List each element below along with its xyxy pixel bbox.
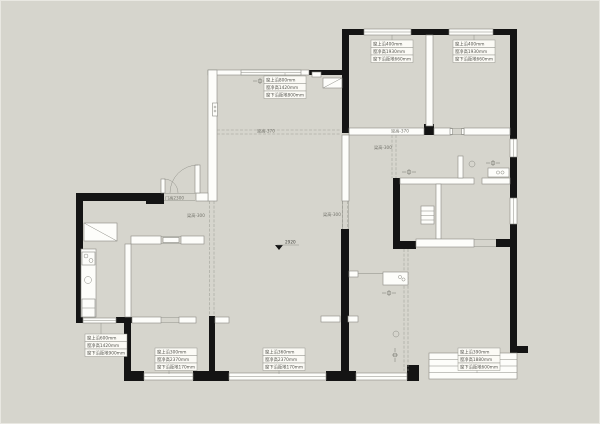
window xyxy=(144,373,193,380)
svg-text:窗下沿距地600mm: 窗下沿距地600mm xyxy=(460,364,498,371)
partition-wall xyxy=(179,317,196,323)
window-marker xyxy=(312,72,321,77)
door-height-label: 门高2300 xyxy=(165,195,184,202)
partition-wall xyxy=(196,193,208,201)
partition-wall xyxy=(125,244,131,317)
partition-wall xyxy=(321,316,340,322)
svg-text:窗净高1930mm: 窗净高1930mm xyxy=(373,48,405,55)
partition-wall xyxy=(181,236,204,244)
wall-segment xyxy=(510,157,517,198)
beam-labels: 梁高-370 梁高-370 梁高-300 梁高-300 梁高-300 xyxy=(187,128,409,220)
window xyxy=(449,29,493,35)
floor-drain-icon xyxy=(392,348,398,362)
wall-segment xyxy=(393,241,416,249)
svg-text:窗下沿距地800mm: 窗下沿距地800mm xyxy=(266,92,304,99)
wall-segment xyxy=(411,29,449,35)
floor-drain-icon xyxy=(402,169,416,175)
partition-wall xyxy=(208,70,217,201)
partition-wall xyxy=(482,178,510,184)
floor-drain-icon xyxy=(486,160,500,166)
sliding-door xyxy=(163,238,179,243)
svg-text:窗上沿400mm: 窗上沿400mm xyxy=(455,41,484,48)
partition-wall xyxy=(400,178,474,184)
beam-label: 梁高-300 xyxy=(323,211,341,218)
partition-wall xyxy=(416,239,474,247)
wall-segment xyxy=(209,316,215,373)
svg-text:窗净高2370mm: 窗净高2370mm xyxy=(265,356,297,363)
toilet xyxy=(393,331,399,337)
door-leaf xyxy=(161,179,165,193)
partition-wall xyxy=(132,317,161,323)
wall-segment xyxy=(342,29,349,133)
svg-text:窗上沿800mm: 窗上沿800mm xyxy=(266,77,295,84)
floor-plan-screenshot: 2920 梁高-370 梁高-370 梁高-300 梁高-300 梁高-300 … xyxy=(0,0,600,424)
window-annotation-box: 窗上沿360mm 窗净高2370mm 窗下沿距地170mm xyxy=(263,348,305,374)
door-swing-arc xyxy=(170,165,198,193)
cooktop xyxy=(82,252,95,265)
window xyxy=(241,70,301,75)
svg-text:窗上沿300mm: 窗上沿300mm xyxy=(157,349,186,356)
svg-text:窗下沿距地900mm: 窗下沿距地900mm xyxy=(87,350,125,357)
svg-text:窗下沿距地170mm: 窗下沿距地170mm xyxy=(265,364,303,371)
level-triangle-icon xyxy=(275,245,283,250)
partition-wall xyxy=(434,128,451,135)
svg-text:窗上沿600mm: 窗上沿600mm xyxy=(87,335,116,342)
window-annotation-box: 窗上沿600mm 窗净高1420mm 窗下沿距地900mm xyxy=(85,323,127,357)
fixtures xyxy=(81,72,509,337)
door-frame xyxy=(450,129,453,135)
level-marker: 2920 xyxy=(275,240,299,251)
window xyxy=(356,373,407,380)
beam-label: 梁高-300 xyxy=(187,212,205,219)
svg-text:窗净高2370mm: 窗净高2370mm xyxy=(157,356,189,363)
window xyxy=(364,29,411,35)
level-value: 2920 xyxy=(285,240,296,245)
entry-door xyxy=(161,165,200,193)
beam-label: 梁高-370 xyxy=(391,128,409,135)
partition-wall xyxy=(464,128,510,135)
window-annotation-box: 窗上沿400mm 窗净高1930mm 窗下沿距地660mm xyxy=(371,35,413,63)
bath-vanity xyxy=(358,272,408,285)
partition-wall xyxy=(342,135,349,201)
wall-segment xyxy=(146,193,164,204)
svg-text:窗净高1930mm: 窗净高1930mm xyxy=(455,48,487,55)
wall-segment xyxy=(510,346,528,353)
window xyxy=(510,139,517,157)
window-annotation-box: 窗上沿800mm 窗净高1420mm 窗下沿距地800mm xyxy=(264,73,306,99)
door-frame xyxy=(462,129,465,135)
partition-wall xyxy=(436,184,441,239)
svg-text:窗下沿距地660mm: 窗下沿距地660mm xyxy=(455,56,493,63)
partition-wall xyxy=(348,316,358,322)
svg-text:窗上沿390mm: 窗上沿390mm xyxy=(460,349,489,356)
partition-wall xyxy=(458,156,463,178)
svg-text:窗净高1420mm: 窗净高1420mm xyxy=(87,342,119,349)
window xyxy=(229,373,326,380)
window-annotation-box: 窗上沿400mm 窗净高1930mm 窗下沿距地660mm xyxy=(453,35,495,63)
floor-drain-icon xyxy=(382,290,396,296)
partition-wall xyxy=(349,128,424,135)
wash-basin xyxy=(469,161,475,167)
wall-segment xyxy=(341,229,349,379)
partition-wall xyxy=(426,35,433,126)
wall-vent xyxy=(213,103,218,116)
appliance-box xyxy=(84,223,117,241)
beam-label: 梁高-300 xyxy=(374,144,392,151)
corner-unit xyxy=(323,78,342,88)
window-annotation-box: 窗上沿390mm 窗净高1880mm 窗下沿距地600mm xyxy=(458,348,500,373)
wall-segment xyxy=(124,371,144,381)
wall-segment xyxy=(116,317,132,323)
towel-ladder xyxy=(421,206,434,224)
partition-wall xyxy=(349,271,358,277)
vanity-counter xyxy=(488,168,509,177)
window xyxy=(510,198,517,224)
wall-segment xyxy=(510,29,517,139)
floor-drain-symbols xyxy=(253,78,500,362)
wall-segment xyxy=(407,365,419,381)
beam-label: 梁高-370 xyxy=(257,128,275,135)
window-annotation-box: 窗上沿300mm 窗净高2370mm 窗下沿距地170mm xyxy=(155,348,197,374)
svg-text:窗下沿距地170mm: 窗下沿距地170mm xyxy=(157,364,195,371)
window xyxy=(83,318,116,323)
base-cabinet xyxy=(82,299,95,317)
beam-lines xyxy=(210,130,409,371)
partition-wall xyxy=(131,236,161,244)
partition-walls xyxy=(125,35,510,323)
door-leaf xyxy=(195,165,200,193)
svg-text:窗净高1880mm: 窗净高1880mm xyxy=(460,356,492,363)
partition-wall xyxy=(215,317,229,323)
svg-text:窗上沿360mm: 窗上沿360mm xyxy=(265,349,294,356)
wall-segment xyxy=(393,178,400,249)
svg-text:窗上沿400mm: 窗上沿400mm xyxy=(373,41,402,48)
floor-plan-canvas: 2920 梁高-370 梁高-370 梁高-300 梁高-300 梁高-300 … xyxy=(1,1,600,424)
svg-text:窗下沿距地660mm: 窗下沿距地660mm xyxy=(373,56,411,63)
wall-segment xyxy=(510,224,517,346)
svg-text:窗净高1420mm: 窗净高1420mm xyxy=(266,84,298,91)
wall-segment xyxy=(496,239,510,247)
